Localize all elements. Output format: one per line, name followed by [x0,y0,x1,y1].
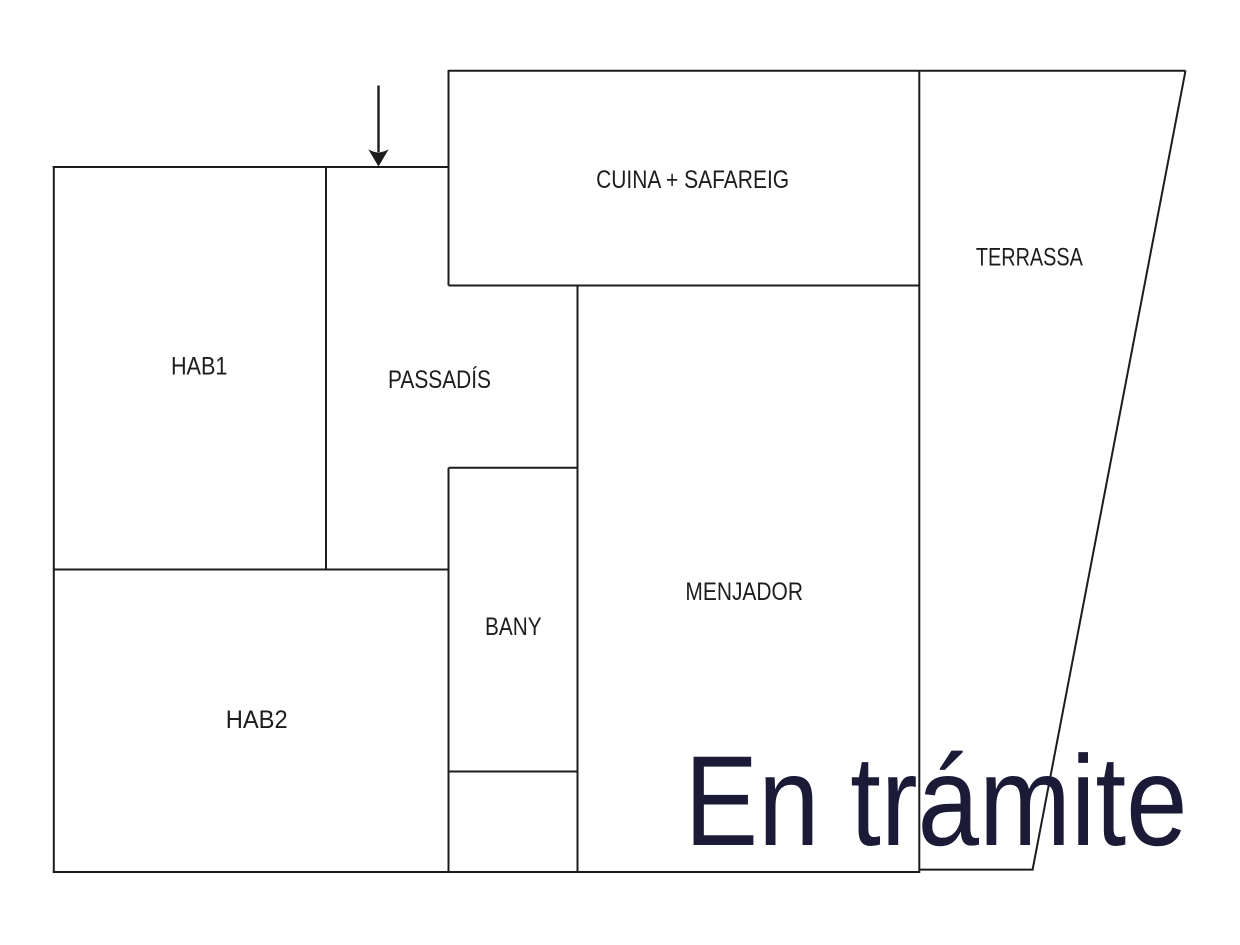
svg-text:MENJADOR: MENJADOR [685,578,803,606]
svg-text:En trámite: En trámite [685,730,1188,873]
svg-text:HAB1: HAB1 [171,353,228,381]
svg-text:CUINA + SAFAREIG: CUINA + SAFAREIG [596,166,789,194]
svg-text:HAB2: HAB2 [226,706,288,734]
svg-text:BANY: BANY [485,613,542,641]
svg-text:PASSADÍS: PASSADÍS [388,365,491,394]
svg-text:TERRASSA: TERRASSA [976,244,1083,272]
